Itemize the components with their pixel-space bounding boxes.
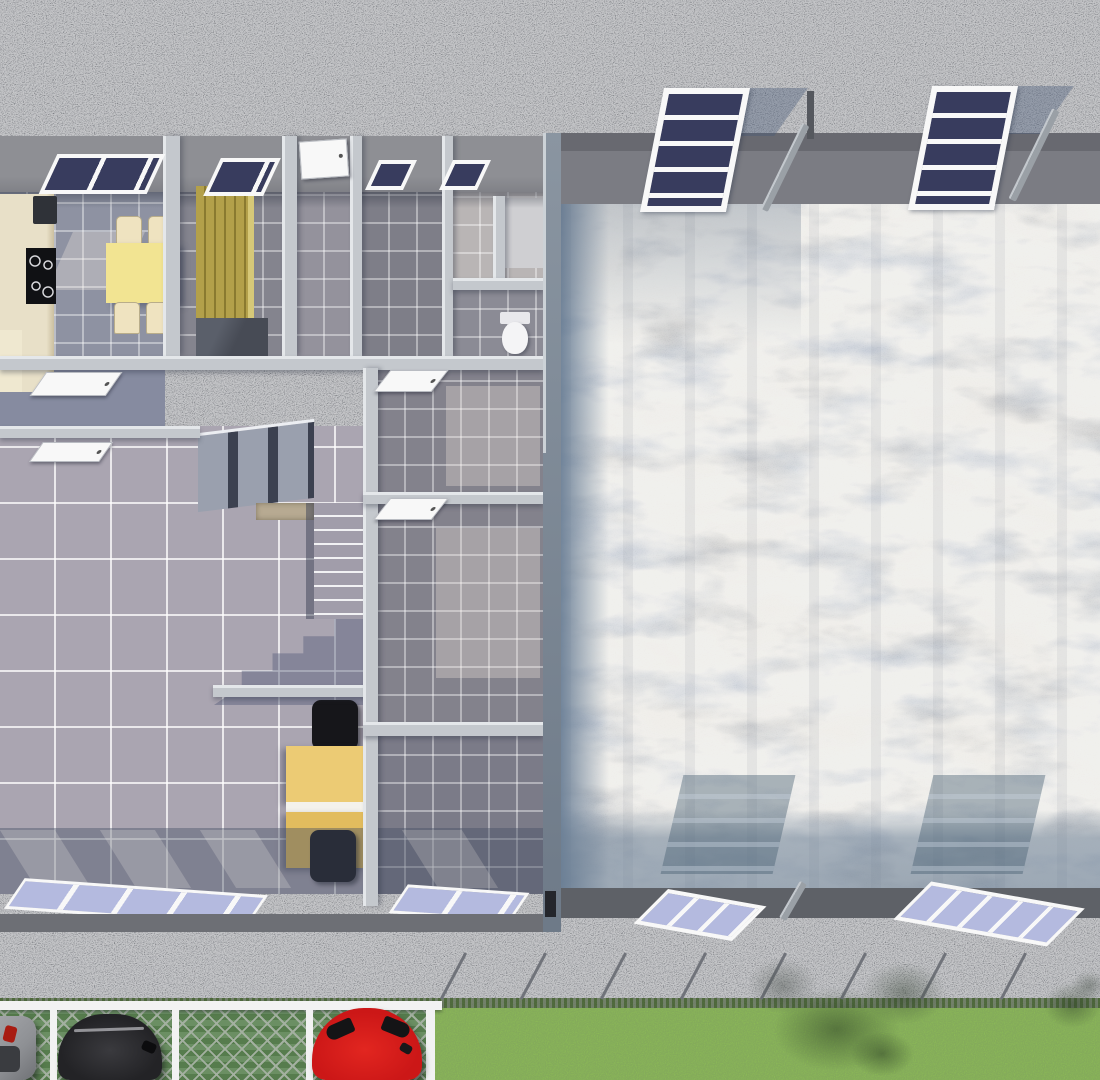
kitchen-roof-window (39, 154, 166, 194)
toilet (502, 322, 528, 354)
wall-entry-corridor (350, 136, 362, 356)
divider-wall-highlight (543, 133, 546, 453)
industrial-hall (561, 133, 1100, 932)
roof-post (807, 91, 814, 139)
window-shadow-on-floor (911, 775, 1046, 874)
parking-divider-line (172, 1010, 179, 1080)
stair-upper-flight (198, 419, 314, 512)
desk-divider (286, 802, 366, 812)
kitchen-sink (33, 196, 57, 224)
left-wing (0, 136, 545, 932)
car-mirror (399, 1042, 414, 1056)
slatted-wardrobe (196, 186, 254, 320)
car-silver (0, 1016, 36, 1080)
car-roof-highlight (74, 1027, 144, 1032)
tree-shadow-small (1030, 962, 1100, 1040)
eave-shadow (0, 192, 545, 208)
tree-shadow-large (715, 935, 985, 1080)
car-window (0, 1046, 20, 1072)
stair-stringer-shadow (306, 503, 314, 619)
car-mirror (141, 1040, 158, 1055)
window-shadow-on-floor (661, 775, 796, 874)
wall-living-offices (363, 368, 378, 906)
car-taillight (2, 1025, 18, 1043)
stair-lower-flight (314, 503, 368, 619)
parking-edge-line (426, 1008, 435, 1080)
wall-living-mid (213, 685, 366, 697)
dining-chair (114, 302, 140, 334)
wall-kitchen-wardrobe (163, 136, 180, 356)
desk-upper (286, 746, 366, 802)
wall-bath-divider (453, 278, 543, 290)
north-wall-shadow (561, 204, 801, 344)
sun-patch (446, 386, 540, 486)
south-outer-wall (0, 914, 545, 932)
office-chair (312, 700, 358, 750)
render-stage (0, 0, 1100, 1080)
entry-hall-floor (297, 192, 350, 362)
dining-chair (116, 216, 142, 246)
wall-wardrobe-entry (282, 136, 297, 356)
divider-wall-notch (545, 891, 556, 917)
wall-top-rooms-south (0, 356, 543, 370)
shower-wall (493, 196, 505, 282)
wall-office-b-workstation (363, 722, 543, 736)
central-divider-wall (543, 133, 561, 932)
wall-corridor-living (0, 426, 200, 438)
entry-door (299, 138, 350, 179)
living-room-door (29, 442, 113, 462)
cooktop (26, 248, 56, 304)
corridor-floor (362, 192, 442, 362)
parking-divider-line (50, 1010, 57, 1080)
shower-floor (505, 198, 543, 268)
bathroom-lower-floor (453, 290, 543, 364)
sun-patch (436, 528, 540, 678)
car-headlight-left (324, 1017, 356, 1042)
